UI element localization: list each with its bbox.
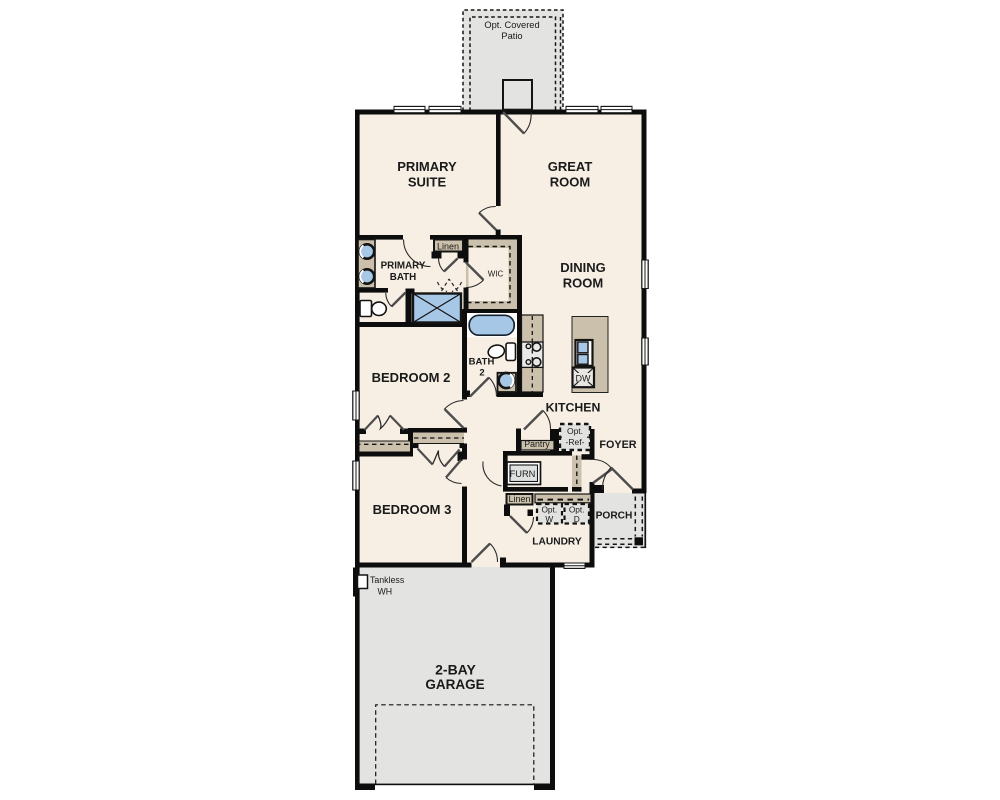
svg-text:Linen: Linen <box>508 494 530 504</box>
svg-text:2: 2 <box>479 368 484 379</box>
svg-text:Linen: Linen <box>437 242 459 252</box>
svg-text:Patio: Patio <box>501 31 522 41</box>
svg-text:BEDROOM 2: BEDROOM 2 <box>372 370 451 385</box>
svg-text:GARAGE: GARAGE <box>425 677 484 692</box>
svg-text:BATH: BATH <box>469 357 495 368</box>
svg-text:BEDROOM 3: BEDROOM 3 <box>373 502 452 517</box>
svg-text:DINING: DINING <box>560 260 606 275</box>
svg-text:WH: WH <box>378 587 393 597</box>
svg-text:-Ref-: -Ref- <box>566 437 585 447</box>
svg-text:Pantry: Pantry <box>524 439 550 449</box>
svg-text:LAUNDRY: LAUNDRY <box>532 537 582 548</box>
svg-text:FOYER: FOYER <box>599 439 636 451</box>
svg-text:GREAT: GREAT <box>548 159 593 174</box>
svg-text:WIC: WIC <box>488 270 504 279</box>
svg-text:DW: DW <box>576 373 591 383</box>
svg-text:Opt. Covered: Opt. Covered <box>484 20 539 30</box>
svg-text:PRIMARY: PRIMARY <box>397 159 457 174</box>
svg-text:Tankless: Tankless <box>370 575 405 585</box>
svg-text:FURN: FURN <box>510 469 536 479</box>
svg-text:SUITE: SUITE <box>408 175 447 190</box>
svg-text:W: W <box>545 514 553 524</box>
svg-text:ROOM: ROOM <box>563 276 603 291</box>
svg-text:BATH: BATH <box>390 272 416 283</box>
svg-text:ROOM: ROOM <box>550 175 590 190</box>
svg-text:PORCH: PORCH <box>596 510 633 521</box>
svg-text:Opt.: Opt. <box>567 426 583 436</box>
svg-text:KITCHEN: KITCHEN <box>546 401 601 415</box>
svg-text:D: D <box>574 514 580 524</box>
svg-text:PRIMARY: PRIMARY <box>381 261 426 272</box>
svg-text:2-BAY: 2-BAY <box>435 662 476 678</box>
